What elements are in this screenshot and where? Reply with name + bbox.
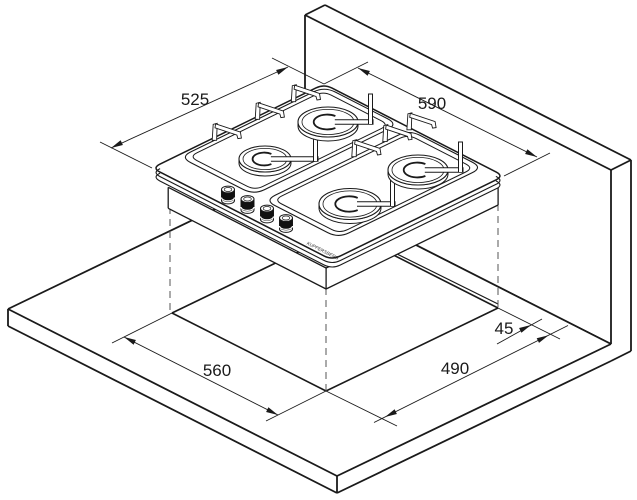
svg-text:560: 560 — [203, 361, 231, 380]
svg-text:490: 490 — [441, 359, 469, 378]
svg-text:590: 590 — [418, 94, 446, 113]
svg-text:525: 525 — [181, 90, 209, 109]
svg-text:45: 45 — [495, 319, 514, 338]
